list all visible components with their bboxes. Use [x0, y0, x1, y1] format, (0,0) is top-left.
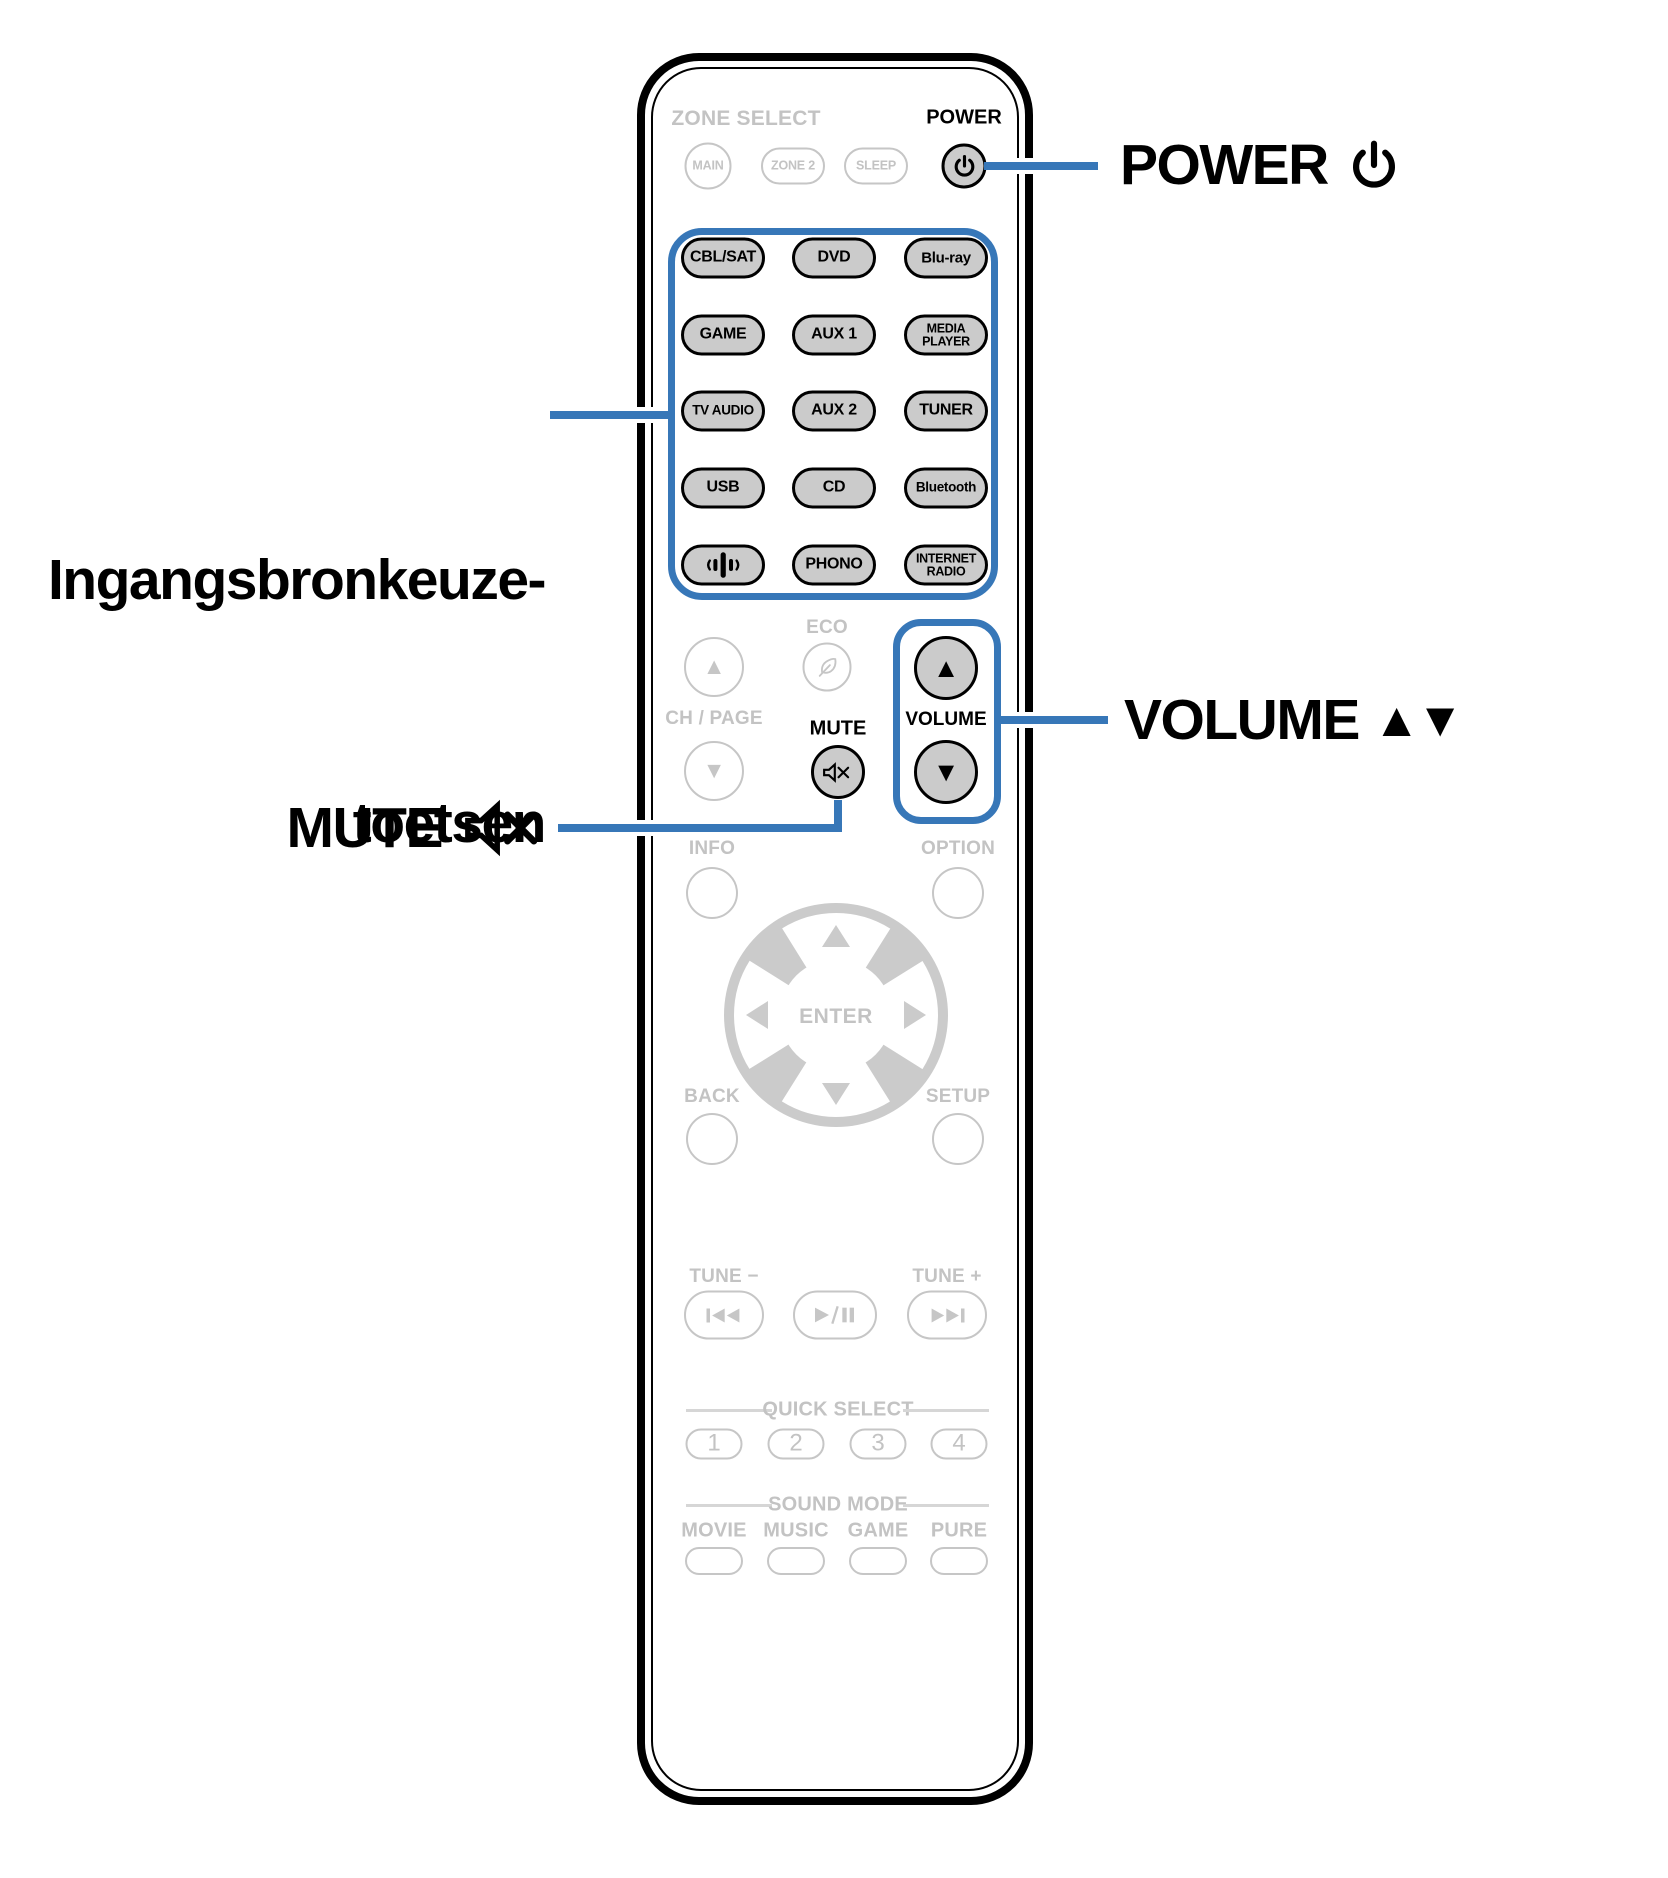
mute-icon	[462, 798, 550, 858]
sound-mode-left-rule	[686, 1504, 772, 1507]
mute-button-label: MUTE	[810, 719, 867, 740]
sound-mode-movie-label: MOVIE	[681, 1521, 746, 1542]
mute-callout: MUTE	[287, 793, 550, 863]
volume-callout: VOLUME ▲▼	[1124, 685, 1460, 755]
sound-mode-right-rule	[903, 1504, 989, 1507]
volume-down-button: ▼	[914, 740, 978, 804]
input-button-tv-audio: TV AUDIO	[681, 391, 765, 432]
sleep-button: SLEEP	[844, 148, 908, 185]
up-triangle-icon: ▲	[933, 654, 959, 682]
input-button-tuner: TUNER	[904, 391, 988, 432]
eco-label: ECO	[806, 618, 848, 638]
input-button-game: GAME	[681, 315, 765, 356]
play-pause-button	[793, 1291, 877, 1340]
input-button-usb: USB	[681, 468, 765, 509]
mute-callout-text: MUTE	[287, 795, 442, 861]
channel-page-label: CH / PAGE	[665, 709, 763, 729]
sound-mode-music-button	[767, 1547, 825, 1575]
back-label: BACK	[684, 1087, 740, 1107]
sound-mode-title: SOUND MODE	[768, 1495, 908, 1516]
quick-select-1-button: 1	[686, 1429, 743, 1460]
skip-forward-icon	[926, 1304, 968, 1326]
skip-back-button	[684, 1291, 764, 1340]
power-callout: POWER	[1120, 130, 1402, 200]
input-button-aux2: AUX 2	[792, 391, 876, 432]
quick-select-right-rule	[903, 1409, 989, 1412]
quick-select-left-rule	[686, 1409, 772, 1412]
eco-leaf-icon	[812, 652, 842, 682]
input-button-cd: CD	[792, 468, 876, 509]
power-button	[942, 144, 987, 189]
sound-mode-game-button	[849, 1547, 907, 1575]
skip-forward-button	[907, 1291, 987, 1340]
input-button-internet-radio: INTERNET RADIO	[904, 545, 988, 586]
main-zone-button: MAIN	[685, 143, 732, 190]
play-pause-icon	[811, 1304, 859, 1327]
down-triangle-icon: ▼	[703, 759, 726, 783]
power-icon	[951, 136, 977, 195]
quick-select-3-button: 3	[850, 1429, 907, 1460]
dpad: ENTER	[716, 895, 956, 1135]
channel-page-down-button: ▼	[684, 741, 744, 801]
sound-mode-pure-button	[930, 1547, 988, 1575]
quick-select-2-button: 2	[768, 1429, 825, 1460]
quick-select-title: QUICK SELECT	[762, 1400, 913, 1421]
input-source-callout-line1: Ingangsbronkeuze-	[48, 540, 545, 621]
zone-select-title: ZONE SELECT	[671, 108, 820, 130]
sound-mode-movie-button	[685, 1547, 743, 1575]
setup-button	[932, 1113, 984, 1165]
network-audio-icon	[701, 532, 745, 598]
input-button-media-player: MEDIA PLAYER	[904, 315, 988, 356]
volume-callout-text: VOLUME	[1124, 687, 1359, 753]
mute-button	[811, 745, 865, 799]
volume-button-label: VOLUME	[905, 710, 986, 730]
volume-up-button: ▲	[914, 636, 978, 700]
down-triangle-icon: ▼	[933, 758, 959, 786]
quick-select-4-button: 4	[931, 1429, 988, 1460]
sound-mode-game-label: GAME	[848, 1521, 909, 1542]
input-button-aux1: AUX 1	[792, 315, 876, 356]
channel-page-up-button: ▲	[684, 637, 744, 697]
input-button-dvd: DVD	[792, 238, 876, 279]
eco-button	[803, 643, 852, 692]
mute-icon	[822, 744, 854, 800]
power-icon	[1346, 137, 1402, 193]
volume-up-down-icon: ▲▼	[1373, 693, 1460, 748]
enter-label: ENTER	[799, 1005, 873, 1028]
zone2-button: ZONE 2	[761, 148, 825, 185]
skip-back-icon	[703, 1304, 745, 1326]
setup-label: SETUP	[926, 1087, 990, 1107]
input-button-blu-ray: Blu-ray	[904, 238, 988, 279]
sound-mode-music-label: MUSIC	[763, 1521, 828, 1542]
power-button-label: POWER	[926, 108, 1002, 129]
sound-mode-pure-label: PURE	[931, 1521, 987, 1542]
input-button-bluetooth: Bluetooth	[904, 468, 988, 509]
back-button	[686, 1113, 738, 1165]
manual-diagram-page: ZONE SELECT MAIN ZONE 2 SLEEP POWER CBL/…	[0, 0, 1668, 1878]
input-button-network-audio	[681, 545, 765, 586]
input-button-cbl-sat: CBL/SAT	[681, 238, 765, 279]
info-label: INFO	[689, 839, 735, 859]
tune-plus-label: TUNE +	[912, 1267, 981, 1287]
tune-minus-label: TUNE −	[689, 1267, 758, 1287]
up-triangle-icon: ▲	[703, 655, 726, 679]
input-source-callout: Ingangsbronkeuze- toetsen	[48, 378, 545, 1026]
power-callout-text: POWER	[1120, 132, 1328, 198]
input-button-phono: PHONO	[792, 545, 876, 586]
option-label: OPTION	[921, 839, 995, 859]
